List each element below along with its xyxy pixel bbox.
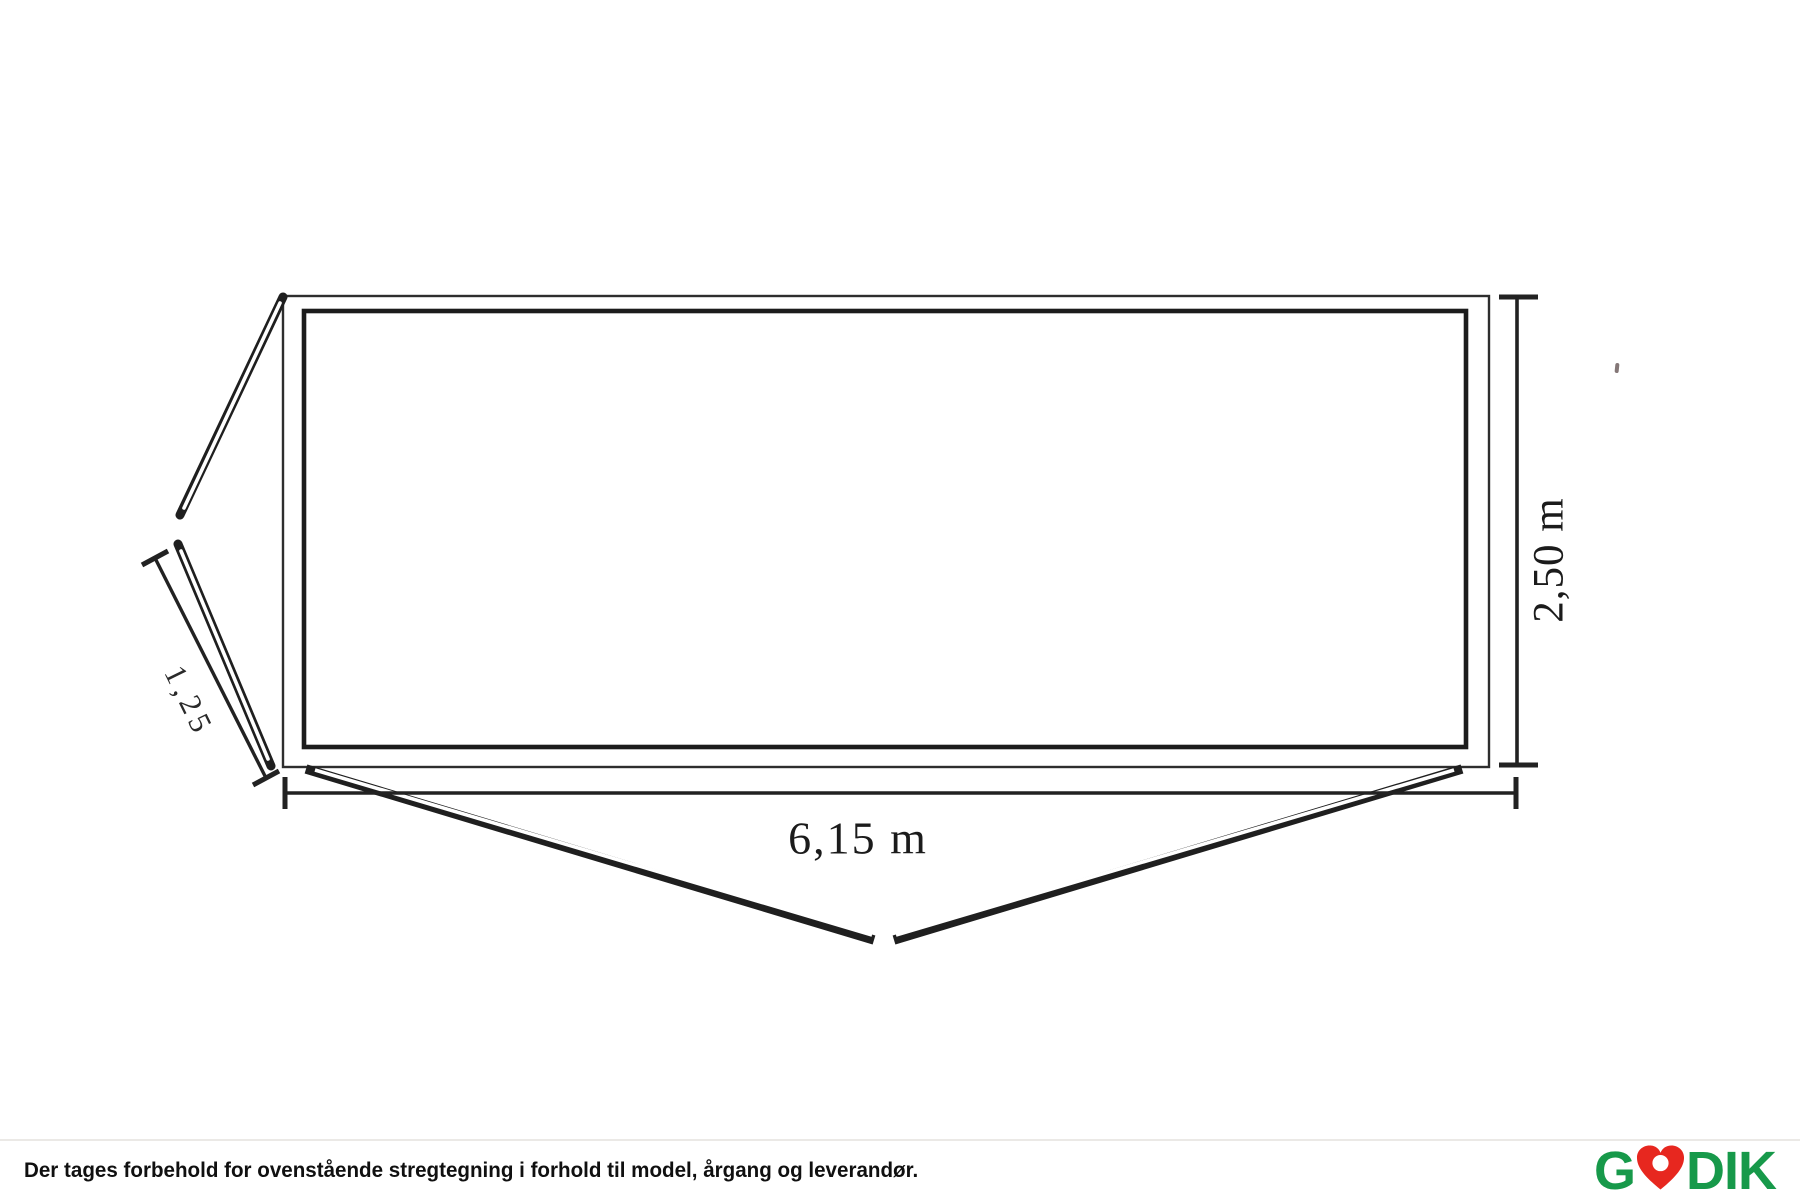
- outer-wall-rect: [283, 296, 1489, 767]
- disclaimer-text: Der tages forbehold for ovenstående stre…: [24, 1159, 918, 1183]
- width-dimension-label: 6,15 m: [788, 812, 928, 865]
- page: 6,15 m 2,50 m 1,25 Der tages forbehold f…: [0, 0, 1800, 1200]
- logo-text-dik: DIK: [1686, 1144, 1776, 1198]
- height-dimension-label: 2,50 m: [1525, 497, 1574, 622]
- logo-text-g: G: [1594, 1144, 1635, 1198]
- dimension-line-side: [142, 551, 279, 785]
- heart-icon: [1636, 1143, 1685, 1193]
- pole-upper-left: [180, 297, 283, 515]
- godik-logo: G DIK: [1594, 1143, 1776, 1199]
- footer-bar: Der tages forbehold for ovenstående stre…: [0, 1139, 1800, 1200]
- inner-wall-rect: [304, 311, 1466, 747]
